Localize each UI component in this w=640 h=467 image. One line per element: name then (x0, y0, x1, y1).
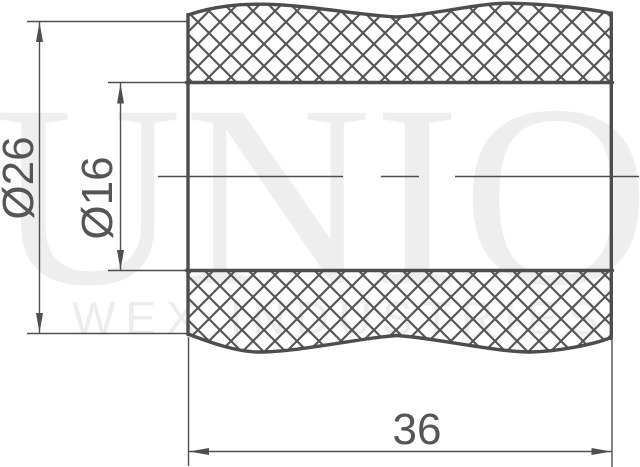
dimension-length: 36 (189, 337, 613, 467)
section-drawing: Ø26 Ø16 36 (0, 0, 640, 467)
arrowhead-down (36, 313, 43, 333)
technical-drawing-canvas: UNION WEX INDUSTRIES (0, 0, 640, 467)
inner-diameter-label: Ø16 (73, 156, 122, 239)
part-section-walls (188, 3, 611, 352)
outer-diameter-label: Ø26 (0, 136, 43, 219)
arrowhead-up (36, 22, 43, 42)
arrowhead-left (189, 448, 209, 455)
bottom-wall-hatch-area (188, 271, 611, 352)
top-wall-hatch-area (188, 3, 611, 82)
arrowhead-up (117, 84, 124, 104)
length-label: 36 (393, 405, 442, 454)
arrowhead-down (117, 250, 124, 270)
arrowhead-right (592, 448, 612, 455)
